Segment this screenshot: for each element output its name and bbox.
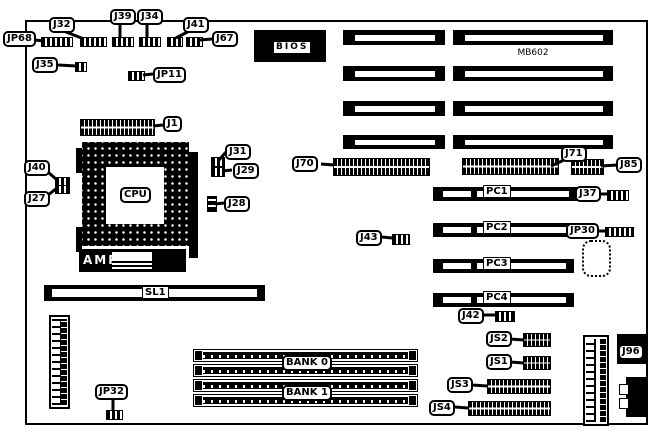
bank1-label: BANK 1 [282, 385, 332, 401]
bank0-label: BANK 0 [282, 355, 332, 371]
label-j32: J32 [49, 17, 75, 33]
sl1-label: SL1 [142, 286, 169, 299]
label-j27: J27 [24, 191, 50, 207]
label-js3: JS3 [447, 377, 473, 393]
label-j67: J67 [212, 31, 238, 47]
label-j35: J35 [32, 57, 58, 73]
label-j31: J31 [225, 144, 251, 160]
label-j85: J85 [616, 157, 642, 173]
label-j37: J37 [575, 186, 601, 202]
label-j28: J28 [224, 196, 250, 212]
label-j43: J43 [356, 230, 382, 246]
motherboard-diagram: JP68 J32 J39 J34 J41 J67 J35 JP11 BIOS M… [0, 0, 650, 434]
label-j96: J96 [618, 344, 644, 360]
label-j41: J41 [183, 17, 209, 33]
cpu-label: CPU [120, 187, 151, 203]
label-js4: JS4 [429, 400, 455, 416]
label-jp30: JP30 [566, 223, 599, 239]
label-jp32: JP32 [95, 384, 128, 400]
label-j39: J39 [110, 9, 136, 25]
label-j70: J70 [292, 156, 318, 172]
label-js1: JS1 [486, 354, 512, 370]
label-j40: J40 [24, 160, 50, 176]
label-jp68: JP68 [3, 31, 36, 47]
label-j42: J42 [458, 308, 484, 324]
label-jp11: JP11 [153, 67, 186, 83]
label-j1: J1 [163, 116, 182, 132]
label-js2: JS2 [486, 331, 512, 347]
label-j34: J34 [137, 9, 163, 25]
label-j29: J29 [233, 163, 259, 179]
label-j71: J71 [561, 146, 587, 162]
